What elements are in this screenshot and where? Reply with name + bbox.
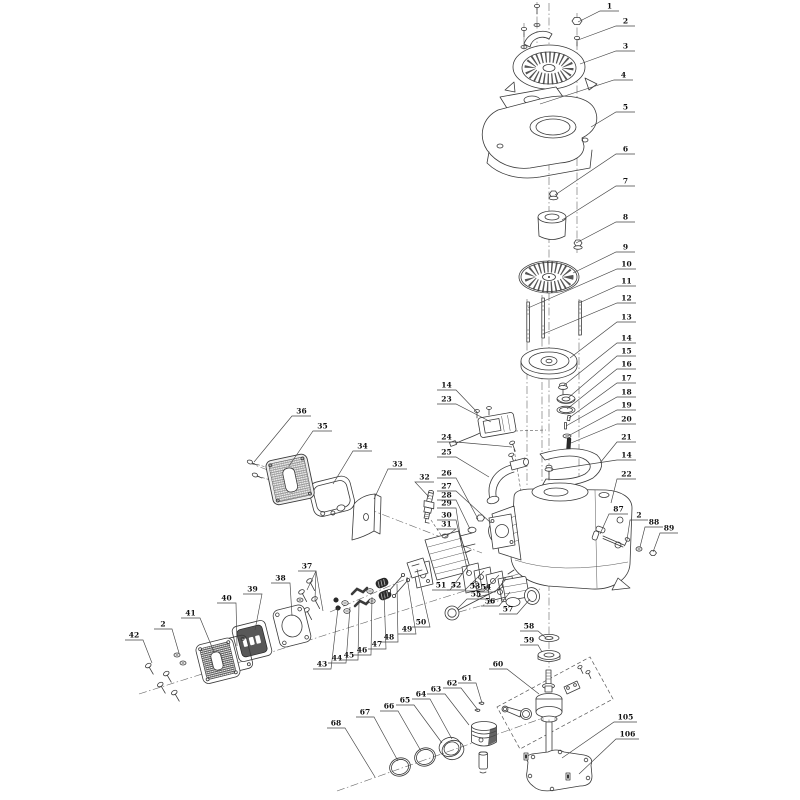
part-number-35: 35 [317,422,327,431]
rod-cap-and-bolts [564,665,593,694]
part-number-30: 30 [441,511,451,520]
muffler [307,474,356,519]
muffler-cover [265,453,315,506]
part-number-14: 14 [441,381,451,390]
crankshaft-assembly [497,657,613,759]
valve-train-parts [334,558,428,613]
piston-assembly [387,702,496,779]
part-number-25: 25 [441,448,451,457]
part-number-49: 49 [402,625,412,634]
pin-17 [567,415,570,420]
part-number-63: 63 [431,685,441,694]
callout-leader-63 [427,694,469,725]
part-number-66: 66 [384,702,394,711]
starter-pulley [521,348,577,379]
washer-19 [563,434,571,438]
ring-16 [557,406,575,414]
part-number-38: 38 [275,574,285,583]
part-number-39: 39 [247,585,257,594]
muffler-screws-36 [247,459,262,478]
rocker-arm [355,600,370,606]
callout-leader-8 [576,222,635,243]
callout-leader-55 [457,599,485,609]
part-number-34: 34 [357,442,367,451]
part-number-23: 23 [441,395,451,404]
callout-leader-33 [374,469,407,499]
woodruff-key-20 [567,438,571,450]
part-number-8: 8 [623,213,628,222]
part-number-51: 51 [436,581,446,590]
part-number-14: 14 [621,451,631,460]
part-number-64: 64 [416,690,426,699]
part-number-105: 105 [618,713,634,722]
piston-rings [387,735,466,779]
part-number-33: 33 [392,460,402,469]
part-number-62: 62 [447,679,457,688]
rocker-cover-41 [195,637,242,685]
callout-leader-1 [578,11,619,22]
part-number-61: 61 [462,674,472,683]
part-number-56: 56 [485,597,495,606]
part-number-2: 2 [623,17,628,26]
callout-leader-3 [580,51,635,64]
part-number-36: 36 [296,407,306,416]
callout-leader-60 [489,669,539,694]
part-number-45: 45 [344,651,354,660]
part-number-14: 14 [621,334,631,343]
spark-plug [420,489,438,523]
piston [472,722,497,747]
callout-leader-64 [412,699,452,739]
part-number-54: 54 [481,583,491,592]
part-number-52: 52 [451,581,461,590]
part-number-47: 47 [372,640,382,649]
valve-seal [334,598,338,602]
callout-leader-65 [396,705,442,743]
part-number-15: 15 [621,347,631,356]
part-number-65: 65 [400,696,410,705]
stud-11 [542,298,545,338]
part-number-50: 50 [416,618,426,627]
callout-leader-66 [380,711,421,751]
flywheel [519,261,579,293]
crankcase-top-face [532,483,588,501]
blower-housing [482,96,596,178]
part-number-27: 27 [441,482,451,491]
part-number-26: 26 [441,469,451,478]
part-number-3: 3 [623,42,628,51]
callout-leader-2 [578,26,635,40]
callout-leader-59 [520,645,542,652]
part-number-60: 60 [493,660,503,669]
part-number-20: 20 [621,415,631,424]
part-number-4: 4 [621,71,626,80]
callout-leader-42 [125,640,152,663]
insulator-plate-27 [489,514,515,549]
callout-leader-5 [591,112,635,127]
callout-leader-37 [315,571,316,600]
bearing-59 [538,651,560,662]
part-number-29: 29 [441,499,451,508]
head-cover-39 [231,619,273,662]
part-number-11: 11 [621,277,631,286]
callout-leader-62 [443,688,478,710]
part-number-22: 22 [621,470,631,479]
dowel-pin [566,773,570,780]
callout-leader-24 [437,442,512,447]
part-number-41: 41 [185,609,195,618]
bolt-8 [574,240,582,249]
part-number-106: 106 [620,730,636,739]
recoil-starter [505,31,597,92]
part-number-43: 43 [317,660,327,669]
rocker-arm [352,588,367,594]
part-number-88: 88 [649,518,659,527]
part-number-17: 17 [621,374,631,383]
engine-exploded-parts-diagram: 1234567891011121314151617181920211422872… [0,0,800,800]
callout-leader-105 [562,722,637,758]
callout-leader-88 [640,527,663,547]
part-number-40: 40 [221,594,231,603]
part-number-2: 2 [636,511,641,520]
part-number-87: 87 [613,505,623,514]
part-number-32: 32 [419,473,429,482]
screw-2 [574,36,579,46]
part-number-21: 21 [621,433,631,442]
part-number-55: 55 [471,590,481,599]
part-number-59: 59 [524,636,534,645]
part-number-16: 16 [621,360,631,369]
part-number-10: 10 [621,260,631,269]
part-number-5: 5 [623,103,628,112]
dowel-pin [524,753,528,760]
part-number-7: 7 [623,177,628,186]
crankcase-cover-gasket [524,750,592,791]
part-number-57: 57 [503,605,513,614]
part-number-19: 19 [621,401,631,410]
starter-cup [538,211,566,240]
callout-leader-89 [653,533,678,552]
callout-leader-67 [356,717,398,761]
part-number-44: 44 [332,654,342,663]
part-number-24: 24 [441,433,451,442]
flange-nut-6 [549,191,558,200]
part-number-58: 58 [524,622,534,631]
crankshaft [536,670,562,759]
part-number-48: 48 [384,633,394,642]
callout-leader-68 [327,728,375,777]
part-number-42: 42 [129,631,139,640]
part-number-68: 68 [331,719,341,728]
part-number-89: 89 [664,524,674,533]
part-number-46: 46 [357,646,367,655]
part-number-12: 12 [621,294,631,303]
part-number-31: 31 [441,520,451,529]
screw-14-lower [545,465,553,480]
cup-washer-15 [557,395,575,404]
part-number-9: 9 [623,243,628,252]
wrist-pin [479,752,488,773]
heat-shield-plate [352,494,381,540]
callout-leader-37 [316,571,323,611]
part-number-6: 6 [623,145,628,154]
callout-leader-2 [154,629,179,653]
part-number-37: 37 [302,562,312,571]
part-number-67: 67 [360,708,370,717]
piston-axis [337,712,560,791]
connecting-rod [502,706,532,720]
ignition-coil [478,412,517,438]
part-number-13: 13 [621,313,631,322]
diagram-canvas: 1234567891011121314151617181920211422872… [0,0,800,800]
part-number-18: 18 [621,388,631,397]
thrust-washer-58 [539,634,559,641]
part-number-1: 1 [607,2,612,11]
part-number-2: 2 [160,620,165,629]
